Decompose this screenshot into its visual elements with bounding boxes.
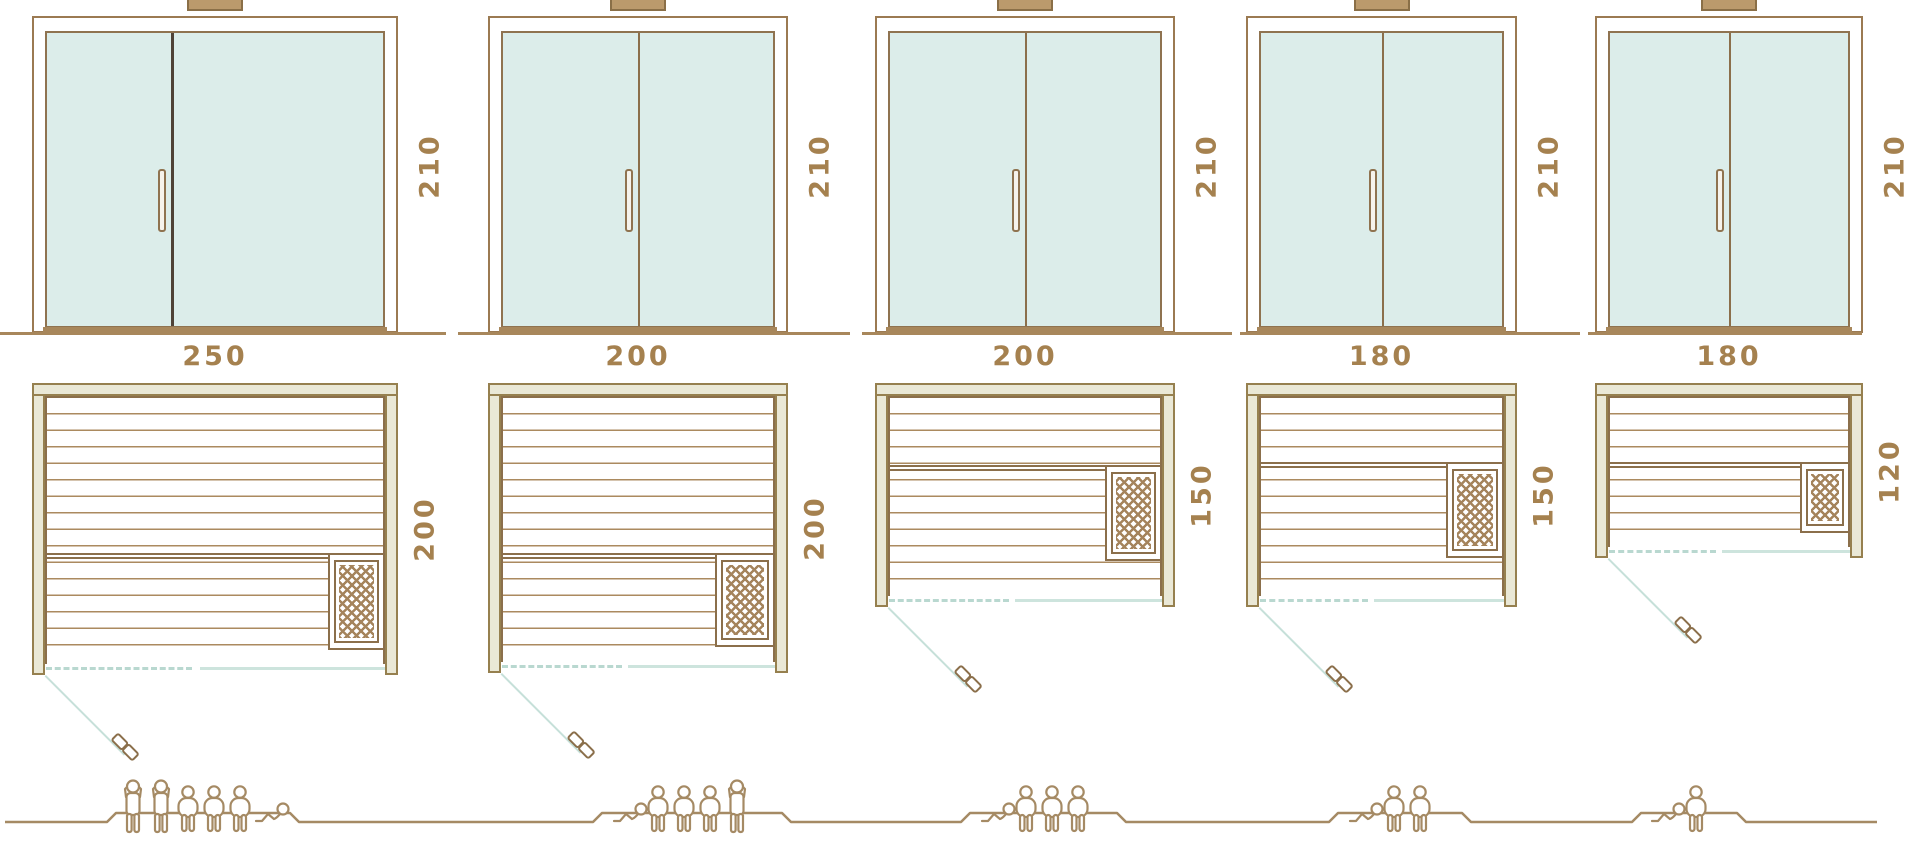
plan-depth-label: 120: [1875, 438, 1906, 503]
plan-wall-right: [1162, 383, 1175, 607]
chimney-vent: [1354, 0, 1410, 11]
seated-person-icon: [1385, 786, 1404, 831]
seated-person-icon: [205, 786, 224, 831]
door-opening-dashed-line: [1260, 599, 1368, 602]
plan-wall-left: [32, 383, 45, 675]
door-ground-line: [1588, 332, 1862, 335]
heater-stove-icon: [1806, 469, 1844, 526]
plan-depth-label: 200: [410, 496, 441, 561]
plan-wall-right: [1850, 383, 1863, 558]
standing-person-icon: [153, 781, 169, 833]
plan-wall-left: [1246, 383, 1259, 607]
plan-depth-label: 200: [800, 495, 831, 560]
chimney-vent: [610, 0, 666, 11]
plan-wall-right: [385, 383, 398, 675]
seated-person-icon: [701, 786, 720, 831]
door-height-label: 210: [805, 133, 836, 198]
plan-wall-left: [488, 383, 501, 673]
door-opening-solid-line: [200, 667, 385, 670]
heater-stove-icon: [1111, 472, 1156, 554]
plan-width-label: 180: [1246, 341, 1517, 372]
plan-width-label: 200: [488, 341, 788, 372]
plan-wall-top: [1595, 383, 1863, 396]
plan-width-label: 250: [32, 341, 398, 372]
door-opening-solid-line: [1722, 550, 1850, 553]
heater-stove-icon: [721, 560, 769, 640]
door-opening-solid-line: [1015, 599, 1162, 602]
seated-person-icon: [1017, 786, 1036, 831]
door-ground-line: [862, 332, 1232, 335]
plan-width-label: 180: [1595, 341, 1863, 372]
door-leaf-divider: [171, 33, 174, 326]
seated-person-icon: [1069, 786, 1088, 831]
door-opening-dashed-line: [889, 599, 1009, 602]
swing-handle-icon: [560, 726, 598, 764]
sauna-size-diagram: 2102502002102002002102001502101801502101…: [0, 0, 1920, 856]
plan-width-label: 200: [875, 341, 1175, 372]
chimney-vent: [997, 0, 1053, 11]
plan-wall-right: [1504, 383, 1517, 607]
door-opening-solid-line: [628, 665, 775, 668]
door-opening-dashed-line: [502, 665, 622, 668]
seated-person-icon: [649, 786, 668, 831]
door-ground-line: [458, 332, 850, 335]
seated-person-icon: [179, 786, 198, 831]
heater-stove-icon: [1452, 469, 1498, 551]
door-height-label: 210: [1534, 133, 1565, 198]
swing-handle-icon: [1318, 660, 1356, 698]
glass-door-panels: [45, 31, 385, 328]
plan-wall-top: [32, 383, 398, 396]
door-ground-line: [1240, 332, 1580, 335]
plan-depth-label: 150: [1529, 462, 1560, 527]
swing-handle-icon: [1667, 611, 1705, 649]
door-leaf-divider: [1729, 33, 1731, 326]
door-handle: [158, 169, 166, 232]
plan-wall-left: [1595, 383, 1608, 558]
door-opening-solid-line: [1374, 599, 1504, 602]
seated-person-icon: [1043, 786, 1062, 831]
seated-person-icon: [1411, 786, 1430, 831]
heater-stove-icon: [334, 560, 379, 643]
door-handle: [625, 169, 633, 232]
door-leaf-divider: [1382, 33, 1384, 326]
door-opening-dashed-line: [1609, 550, 1716, 553]
door-height-label: 210: [1192, 133, 1223, 198]
door-handle: [1369, 169, 1377, 232]
door-height-label: 210: [1880, 133, 1911, 198]
chimney-vent: [187, 0, 243, 11]
seated-person-icon: [1687, 786, 1706, 831]
plan-wall-right: [775, 383, 788, 673]
standing-person-icon: [125, 781, 141, 833]
door-ground-line: [0, 332, 446, 335]
door-leaf-divider: [638, 33, 640, 326]
plan-wall-left: [875, 383, 888, 607]
plan-wall-top: [1246, 383, 1517, 396]
capacity-figures-row: [0, 760, 1920, 856]
door-height-label: 210: [415, 133, 446, 198]
plan-wall-top: [488, 383, 788, 396]
seated-person-icon: [675, 786, 694, 831]
plan-wall-top: [875, 383, 1175, 396]
door-opening-dashed-line: [46, 667, 192, 670]
plan-depth-label: 150: [1187, 462, 1218, 527]
swing-handle-icon: [947, 660, 985, 698]
chimney-vent: [1701, 0, 1757, 11]
seated-person-icon: [231, 786, 250, 831]
door-handle: [1716, 169, 1724, 232]
door-handle: [1012, 169, 1020, 232]
door-leaf-divider: [1025, 33, 1027, 326]
standing-person-icon: [729, 781, 745, 833]
